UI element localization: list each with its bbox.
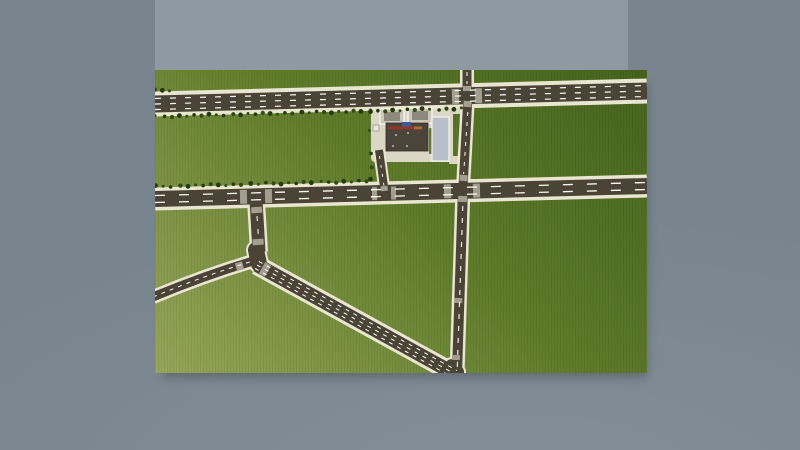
roof-detail-dot-1: [407, 132, 409, 134]
tree: [420, 106, 425, 111]
roof-detail-dot-3: [392, 145, 394, 147]
tree: [239, 183, 243, 187]
tree: [350, 181, 353, 184]
tree: [309, 180, 314, 185]
tree: [368, 177, 373, 182]
tree: [168, 89, 171, 92]
tree: [300, 110, 305, 115]
tree: [428, 108, 431, 111]
tree: [383, 109, 387, 113]
tree: [160, 88, 165, 93]
tree: [327, 180, 331, 184]
tree: [444, 107, 448, 111]
tree: [155, 183, 158, 188]
tree: [413, 108, 417, 112]
screenshot-root: { "scene": { "description": "aerial-top-…: [0, 0, 800, 450]
tree: [231, 112, 235, 116]
tree: [357, 179, 361, 183]
tree: [359, 109, 364, 114]
tree: [247, 112, 250, 115]
tree: [162, 185, 165, 188]
tree: [368, 129, 371, 132]
tree: [224, 184, 227, 187]
tree: [279, 182, 284, 187]
tree: [283, 111, 287, 115]
tree: [315, 110, 319, 114]
map-viewport[interactable]: [155, 70, 647, 373]
tree: [163, 115, 167, 119]
tree: [329, 110, 334, 115]
tree: [399, 109, 402, 112]
tree: [290, 111, 294, 115]
roof-detail-dot-0: [395, 134, 397, 136]
tree: [406, 108, 410, 112]
tree: [199, 114, 203, 118]
roof-detail-dot-2: [406, 145, 408, 147]
station-kiosk: [373, 125, 379, 131]
station-building-blue-sign: [402, 122, 411, 127]
tree: [351, 109, 355, 113]
tree: [194, 183, 197, 186]
tree: [452, 107, 457, 112]
tree: [209, 182, 213, 186]
tree: [185, 115, 188, 118]
tree: [254, 112, 258, 116]
tree: [238, 113, 243, 118]
tree: [320, 180, 323, 183]
tree: [370, 165, 374, 169]
tree: [248, 181, 253, 186]
tree: [294, 182, 298, 186]
tree: [216, 183, 221, 188]
tree: [460, 106, 463, 109]
road-junction-blob: [256, 250, 259, 264]
tree: [170, 115, 174, 119]
tree: [177, 113, 182, 118]
tree: [268, 111, 273, 116]
tree: [364, 179, 368, 183]
tree: [368, 109, 373, 114]
tree: [257, 183, 260, 186]
tree: [155, 88, 157, 92]
tree: [261, 111, 265, 115]
road-diagonal-road: [257, 265, 455, 373]
tree: [207, 112, 212, 117]
tree: [334, 181, 338, 185]
tree: [337, 110, 340, 113]
tree: [186, 184, 191, 189]
road-network-layer: [155, 70, 647, 373]
tree: [287, 181, 290, 184]
fuel-canopy-west-roof: [384, 112, 400, 121]
road-merge-blob: [452, 366, 457, 372]
tree: [222, 114, 226, 118]
tree: [232, 182, 236, 186]
tree: [271, 181, 275, 185]
tree: [376, 109, 380, 113]
tree: [169, 185, 173, 189]
tree: [192, 113, 196, 117]
tree: [437, 108, 441, 112]
tree: [308, 111, 311, 114]
tree: [302, 180, 306, 184]
parking-lot: [432, 117, 449, 161]
backdrop-panel: [155, 0, 628, 73]
fuel-canopy-east-roof: [412, 111, 428, 120]
tree: [201, 184, 205, 188]
tree: [344, 110, 348, 114]
tree: [215, 113, 218, 116]
tree: [264, 181, 268, 185]
tree: [276, 113, 279, 116]
tree: [341, 179, 346, 184]
tree: [178, 184, 182, 188]
tree: [369, 152, 373, 156]
tree: [390, 108, 395, 113]
tree: [322, 110, 326, 114]
station-building-orange-mark: [414, 127, 422, 130]
